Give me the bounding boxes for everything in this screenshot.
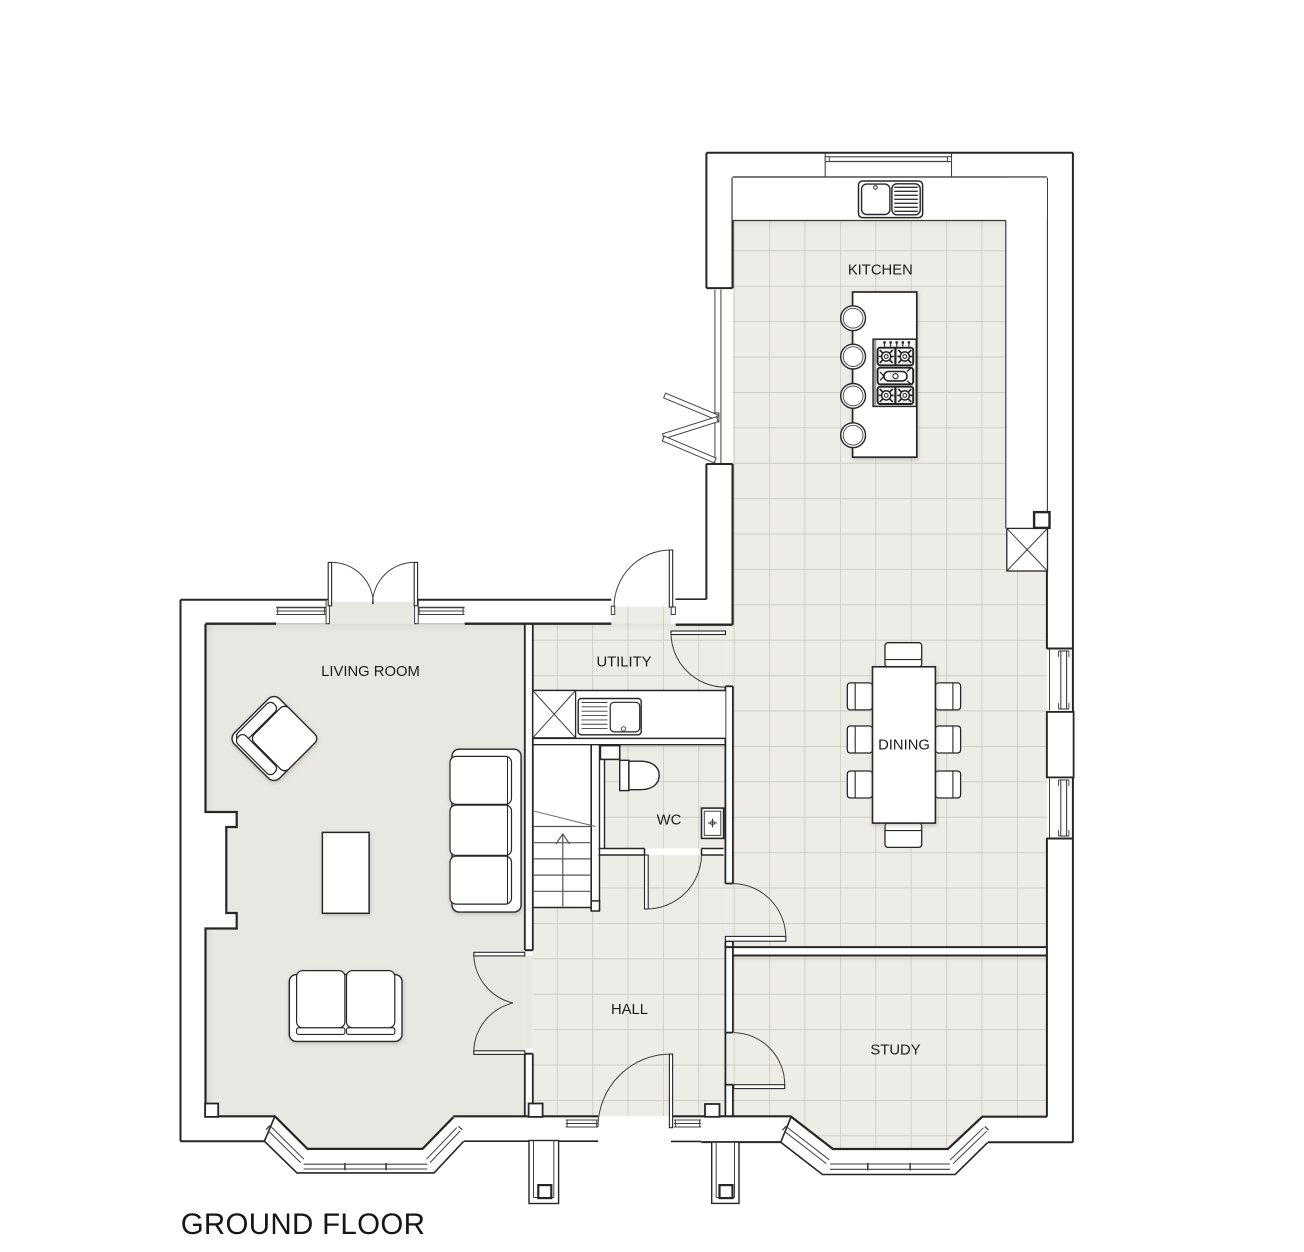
svg-text:UTILITY: UTILITY (596, 655, 651, 671)
svg-text:WC: WC (657, 813, 682, 829)
svg-text:DINING: DINING (878, 737, 930, 753)
svg-text:KITCHEN: KITCHEN (848, 262, 913, 278)
svg-text:STUDY: STUDY (870, 1043, 920, 1059)
svg-text:LIVING ROOM: LIVING ROOM (321, 664, 420, 680)
svg-text:HALL: HALL (611, 1002, 648, 1018)
svg-text:GROUND FLOOR: GROUND FLOOR (181, 1208, 426, 1241)
